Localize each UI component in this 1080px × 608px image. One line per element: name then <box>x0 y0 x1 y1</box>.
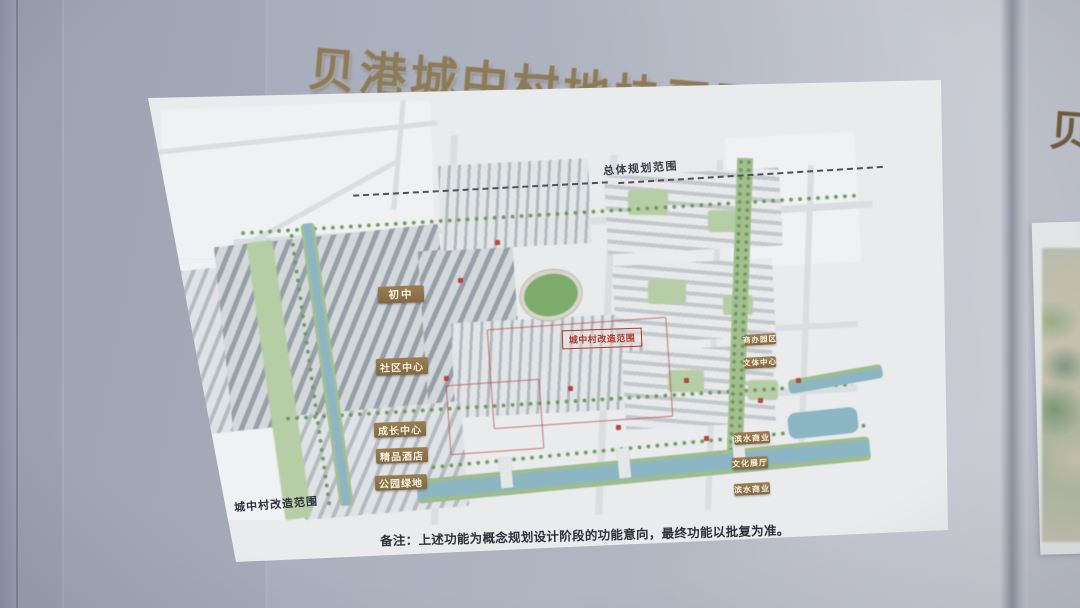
zone-label-waterfront-commercial-1: 滨水商业 <box>734 431 771 445</box>
aerial-render-image <box>1042 248 1080 542</box>
zone-label-culture-exhibition-hall: 文化展厅 <box>732 456 769 470</box>
parcel-marker <box>568 386 573 391</box>
parcel-marker <box>458 278 463 283</box>
zone-label-community-center: 社区中心 <box>376 357 429 376</box>
parcel-marker <box>616 425 621 430</box>
board-left-edge-line <box>16 0 18 608</box>
green-courtyard <box>648 280 686 304</box>
zone-label-waterfront-commercial-2: 滨水商业 <box>734 482 771 496</box>
zone-label-junior-high: 初中 <box>378 285 425 304</box>
urban-village-zone-label: 城中村改造范围 <box>562 328 643 350</box>
building-rows-north <box>438 158 592 251</box>
board-gap-shadow <box>1000 0 1030 608</box>
renovation-boundary-outline <box>446 379 545 455</box>
parcel-marker <box>495 240 500 245</box>
adjacent-board-title-partial: 贝 <box>1048 97 1080 161</box>
plan-map-panel: 总体规划范围 初中 社区中心 成长中心 精品酒店 公园绿地 商办园区 文体中心 … <box>148 80 948 562</box>
parcel-marker <box>684 378 689 383</box>
parcel-marker <box>796 378 801 383</box>
parcel-marker <box>444 376 449 381</box>
zone-label-commercial-office-park: 商办园区 <box>744 333 777 346</box>
parcel-marker <box>704 436 709 441</box>
plan-map-graphics <box>148 80 948 562</box>
pond <box>787 406 859 439</box>
zone-label-growth-center: 成长中心 <box>374 421 426 438</box>
zone-label-park-green-space: 公园绿地 <box>375 474 427 491</box>
zone-label-boutique-hotel: 精品酒店 <box>376 447 428 464</box>
bridge <box>499 458 514 489</box>
bridge <box>617 448 632 479</box>
parcel-marker <box>758 398 763 403</box>
zone-label-culture-sports-center: 文体中心 <box>744 356 777 369</box>
board-left-edge <box>0 0 16 608</box>
